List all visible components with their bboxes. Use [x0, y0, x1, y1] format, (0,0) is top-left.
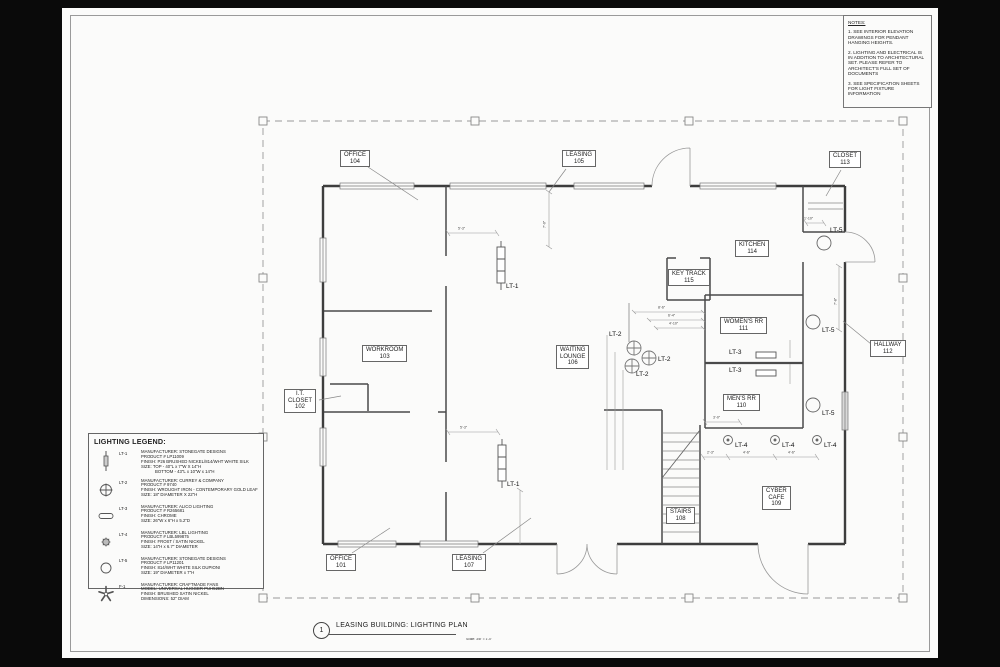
- dim-text: 4'-10": [669, 322, 678, 326]
- lt1-linear-pendant-fixtures: [497, 241, 506, 488]
- fixture-tag-lt2-c: LT-2: [636, 371, 649, 378]
- fixture-tag-lt3-a: LT-3: [729, 349, 742, 356]
- f1-ceiling-fan-icon: [98, 583, 114, 605]
- drawing-title: LEASING BUILDING: LIGHTING PLAN: [336, 622, 468, 629]
- dim-text: 4'-6": [788, 451, 795, 455]
- fixture-tag-lt1-b: LT-1: [507, 481, 520, 488]
- notes-panel: NOTES: 1. SEE INTERIOR ELEVATION DRAWING…: [843, 15, 932, 108]
- dim-text: 2'-3": [707, 451, 714, 455]
- room-label-office-104: OFFICE104: [340, 150, 370, 167]
- fixture-tag-lt1-a: LT-1: [506, 283, 519, 290]
- room-label-stairs-108: STAIRS108: [666, 507, 695, 524]
- lt2-crosshair-pendant-icon: [98, 479, 114, 501]
- drawing-sheet-page: NOTES: 1. SEE INTERIOR ELEVATION DRAWING…: [0, 0, 1000, 667]
- fixture-tag-lt4-a: LT-4: [735, 442, 748, 449]
- legend-entry-lt4: LT-4 MANUFACTURER: LBL LIGHTINGPRODUCT #…: [98, 531, 260, 553]
- fixture-tag-lt5-b: LT-5: [822, 327, 835, 334]
- room-label-leasing-107: LEASING107: [452, 554, 486, 571]
- drawing-number-bubble: 1: [313, 622, 330, 639]
- room-label-workroom-103: WORKROOM103: [362, 345, 407, 362]
- notes-title: NOTES:: [848, 20, 927, 25]
- fixture-tag-lt5-a: LT-5: [830, 227, 843, 234]
- doors: [557, 148, 875, 594]
- note-item-3: 3. SEE SPECIFICATION SHEETS FOR LIGHT FI…: [848, 81, 927, 97]
- room-label-key-track-115: KEY TRACK115: [668, 269, 710, 286]
- dim-text: 4'-6": [743, 451, 750, 455]
- fixture-tag-lt2-a: LT-2: [609, 331, 622, 338]
- fixture-tag-lt3-b: LT-3: [729, 367, 742, 374]
- dim-text: 5'-3": [458, 227, 465, 231]
- lt2-pendant-fixtures: [625, 303, 656, 373]
- fixture-tag-lt4-c: LT-4: [824, 442, 837, 449]
- title-underline: [328, 634, 456, 635]
- legend-entry-lt1: LT-1 MANUFACTURER: STONEGATE DESIGNSPROD…: [98, 450, 260, 475]
- fixture-tag-lt5-c: LT-5: [822, 410, 835, 417]
- room-label-hallway-112: HALLWAY112: [870, 340, 906, 357]
- room-label-leasing-105: LEASING105: [562, 150, 596, 167]
- room-label-kitchen-114: KITCHEN114: [735, 240, 769, 257]
- lt5-flushmount-fixtures: [806, 236, 831, 412]
- lt1-linear-pendant-icon: [98, 450, 114, 472]
- room-label-office-101: OFFICE101: [326, 554, 356, 571]
- room-label-closet-113: CLOSET113: [829, 151, 861, 168]
- room-label-womens-rr-111: WOMEN'S RR111: [720, 317, 767, 334]
- closet-shelf-lines: [808, 203, 843, 209]
- dim-text: 6'-4": [668, 314, 675, 318]
- legend-entry-lt5: LT-5 MANUFACTURER: STONEGATE DESIGNSPROD…: [98, 557, 260, 579]
- lighting-legend-panel: LIGHTING LEGEND: LT-1 MANUFACTURER: STON…: [88, 433, 264, 589]
- dim-text: 3'-0": [713, 416, 720, 420]
- note-item-1: 1. SEE INTERIOR ELEVATION DRAWINGS FOR P…: [848, 29, 927, 45]
- lt3-wall-bar-icon: [98, 505, 114, 527]
- dim-text: 7'-0": [543, 221, 547, 228]
- legend-entry-f1: F-1 MANUFACTURER: CRAFTMADE FANSMODEL: U…: [98, 583, 260, 605]
- legend-entry-lt3: LT-3 MANUFACTURER: ALICO LIGHTINGPRODUCT…: [98, 505, 260, 527]
- room-label-cyber-cafe-109: CYBERCAFE109: [762, 486, 791, 510]
- lt5-round-flushmount-icon: [98, 557, 114, 579]
- room-label-waiting-lounge-106: WAITINGLOUNGE106: [556, 345, 589, 369]
- legend-entry-lt2: LT-2 MANUFACTURER: CURREY & COMPANYPRODU…: [98, 479, 260, 501]
- room-label-mens-rr-110: MEN'S RR110: [723, 394, 760, 411]
- dim-text: 5'-3": [460, 426, 467, 430]
- fixture-tag-lt2-b: LT-2: [658, 356, 671, 363]
- drawing-scale: Scale: 3/8" = 1'-0": [466, 638, 492, 641]
- room-label-it-closet-102: I.T.CLOSET102: [284, 389, 316, 413]
- dim-text: 1'-10": [804, 217, 813, 221]
- legend-title: LIGHTING LEGEND:: [94, 437, 260, 446]
- lt4-small-pendant-icon: [98, 531, 114, 553]
- dim-text: 8'-6": [658, 306, 665, 310]
- dim-text: 7'-8": [834, 298, 838, 305]
- fixture-tag-lt4-b: LT-4: [782, 442, 795, 449]
- note-item-2: 2. LIGHTING AND ELECTRICAL IS IN ADDITIO…: [848, 50, 927, 77]
